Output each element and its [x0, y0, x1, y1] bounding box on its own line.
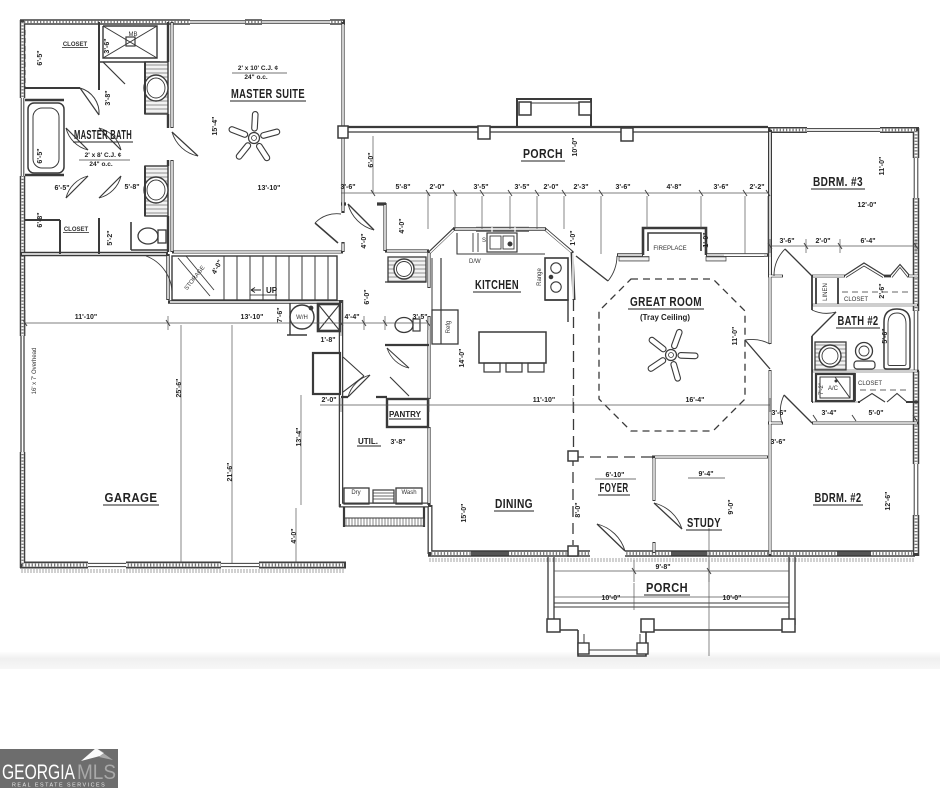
svg-text:3'-4": 3'-4" — [821, 410, 836, 417]
svg-text:7'-6": 7'-6" — [277, 307, 284, 322]
svg-text:15'-0": 15'-0" — [461, 504, 468, 523]
svg-text:PORCH: PORCH — [646, 580, 688, 595]
svg-text:MASTER SUITE: MASTER SUITE — [231, 86, 305, 101]
svg-text:DINING: DINING — [495, 496, 533, 511]
svg-text:3'-6": 3'-6" — [771, 410, 786, 417]
svg-text:3'-6": 3'-6" — [713, 184, 728, 191]
svg-text:A/C: A/C — [828, 386, 839, 392]
svg-text:6'-4": 6'-4" — [860, 238, 875, 245]
svg-text:11'-10": 11'-10" — [533, 397, 556, 404]
svg-text:GREAT ROOM: GREAT ROOM — [630, 294, 702, 309]
svg-text:11'-10": 11'-10" — [75, 314, 98, 321]
svg-text:8'-0": 8'-0" — [575, 502, 582, 517]
svg-text:6'-0": 6'-0" — [368, 152, 375, 167]
svg-text:15'-4": 15'-4" — [212, 117, 219, 136]
svg-text:4'-0": 4'-0" — [361, 233, 368, 248]
svg-text:10'-0": 10'-0" — [572, 138, 579, 157]
svg-text:1'-8": 1'-8" — [320, 337, 335, 344]
svg-text:CLOSET: CLOSET — [63, 42, 88, 48]
svg-text:6'-8": 6'-8" — [37, 212, 44, 227]
svg-text:(Tray Ceiling): (Tray Ceiling) — [640, 312, 690, 322]
svg-text:3'-6": 3'-6" — [779, 238, 794, 245]
svg-text:12'-6": 12'-6" — [885, 492, 892, 511]
svg-text:2'-3": 2'-3" — [573, 184, 588, 191]
svg-text:3'-8": 3'-8" — [105, 90, 112, 105]
svg-text:11'-0": 11'-0" — [879, 157, 886, 176]
svg-text:2'-0": 2'-0" — [429, 184, 444, 191]
svg-text:Refg: Refg — [446, 321, 452, 334]
svg-text:6'-10": 6'-10" — [606, 472, 625, 479]
svg-text:MASTER BATH: MASTER BATH — [74, 127, 132, 142]
svg-text:3'-5": 3'-5" — [412, 314, 427, 321]
svg-text:3'-6": 3'-6" — [615, 184, 630, 191]
svg-text:KITCHEN: KITCHEN — [475, 277, 519, 292]
svg-text:13'-10": 13'-10" — [241, 314, 264, 321]
svg-text:2'-0": 2'-0" — [815, 238, 830, 245]
svg-text:24" o.c.: 24" o.c. — [89, 161, 113, 168]
svg-text:14'-0": 14'-0" — [459, 349, 466, 368]
svg-text:1'-0": 1'-0" — [703, 232, 710, 247]
svg-text:10'-0": 10'-0" — [602, 595, 621, 602]
svg-text:PORCH: PORCH — [523, 146, 563, 161]
svg-text:3'-6": 3'-6" — [104, 38, 111, 53]
svg-text:UP: UP — [266, 286, 278, 295]
svg-text:W/H: W/H — [296, 315, 308, 321]
svg-text:10'-0": 10'-0" — [723, 595, 742, 602]
svg-text:FOYER: FOYER — [600, 480, 629, 495]
svg-text:Range: Range — [537, 268, 543, 286]
svg-text:5'-8": 5'-8" — [395, 184, 410, 191]
svg-text:3'-6": 3'-6" — [770, 439, 785, 446]
svg-text:11'-0": 11'-0" — [732, 327, 739, 346]
svg-text:5'-6": 5'-6" — [882, 328, 889, 343]
svg-text:4'-8": 4'-8" — [666, 184, 681, 191]
svg-text:CLOSET: CLOSET — [64, 227, 89, 233]
svg-text:LINEN: LINEN — [823, 283, 829, 301]
svg-text:25'-6": 25'-6" — [176, 379, 183, 398]
svg-text:Dry: Dry — [351, 490, 360, 496]
svg-text:2'-0": 2'-0" — [321, 397, 336, 404]
svg-text:2' x 8' C.J. ¢: 2' x 8' C.J. ¢ — [85, 152, 122, 159]
svg-text:21'-6": 21'-6" — [227, 463, 234, 482]
svg-text:3'-5": 3'-5" — [514, 184, 529, 191]
svg-text:UTIL.: UTIL. — [358, 437, 378, 446]
svg-text:MB: MB — [129, 32, 138, 38]
svg-text:4'-0": 4'-0" — [291, 528, 298, 543]
svg-text:2'-0": 2'-0" — [543, 184, 558, 191]
svg-text:5'-0": 5'-0" — [868, 410, 883, 417]
svg-text:13'-4": 13'-4" — [296, 428, 303, 447]
svg-text:BATH #2: BATH #2 — [838, 313, 879, 328]
svg-text:6'-5": 6'-5" — [37, 50, 44, 65]
svg-text:9'-0": 9'-0" — [728, 499, 735, 514]
svg-text:5'-8": 5'-8" — [124, 184, 139, 191]
svg-text:4'-0": 4'-0" — [399, 218, 406, 233]
svg-text:3'-8": 3'-8" — [390, 439, 405, 446]
svg-text:4'-4": 4'-4" — [344, 314, 359, 321]
svg-text:9'-4": 9'-4" — [698, 471, 713, 478]
svg-text:6'-0": 6'-0" — [364, 289, 371, 304]
svg-text:GEORGIA: GEORGIA — [2, 761, 75, 784]
svg-text:GARAGE: GARAGE — [105, 490, 158, 505]
svg-text:CLOSET: CLOSET — [844, 297, 868, 303]
svg-text:9'-8": 9'-8" — [655, 564, 670, 571]
svg-text:3'-6": 3'-6" — [340, 184, 355, 191]
svg-text:6'-5": 6'-5" — [54, 185, 69, 192]
svg-text:CLOSET: CLOSET — [858, 381, 882, 387]
svg-text:S: S — [482, 238, 486, 244]
svg-text:13'-10": 13'-10" — [258, 185, 281, 192]
svg-text:STUDY: STUDY — [687, 515, 721, 530]
svg-text:2'-2": 2'-2" — [749, 184, 764, 191]
svg-text:6'-5": 6'-5" — [37, 148, 44, 163]
svg-text:Wash: Wash — [401, 490, 416, 496]
svg-text:BDRM. #2: BDRM. #2 — [815, 490, 862, 505]
svg-text:2'-6": 2'-6" — [879, 283, 886, 298]
svg-text:2' x 10' C.J. ¢: 2' x 10' C.J. ¢ — [238, 65, 279, 72]
svg-text:FIREPLACE: FIREPLACE — [653, 246, 686, 252]
svg-text:3'-5": 3'-5" — [473, 184, 488, 191]
svg-text:5'-2": 5'-2" — [107, 230, 114, 245]
svg-text:BDRM. #3: BDRM. #3 — [813, 174, 863, 189]
svg-text:7'-2": 7'-2" — [819, 383, 825, 395]
svg-text:PANTRY: PANTRY — [389, 410, 422, 419]
svg-text:MLS: MLS — [77, 761, 116, 784]
svg-text:1'-0": 1'-0" — [570, 230, 577, 245]
svg-text:16'-4": 16'-4" — [686, 397, 705, 404]
svg-text:16' x 7' Overhead: 16' x 7' Overhead — [32, 348, 38, 395]
svg-text:REAL ESTATE SERVICES: REAL ESTATE SERVICES — [12, 783, 106, 788]
svg-text:D/W: D/W — [469, 259, 481, 265]
svg-text:12'-0": 12'-0" — [858, 202, 877, 209]
svg-text:24" o.c.: 24" o.c. — [244, 74, 268, 81]
